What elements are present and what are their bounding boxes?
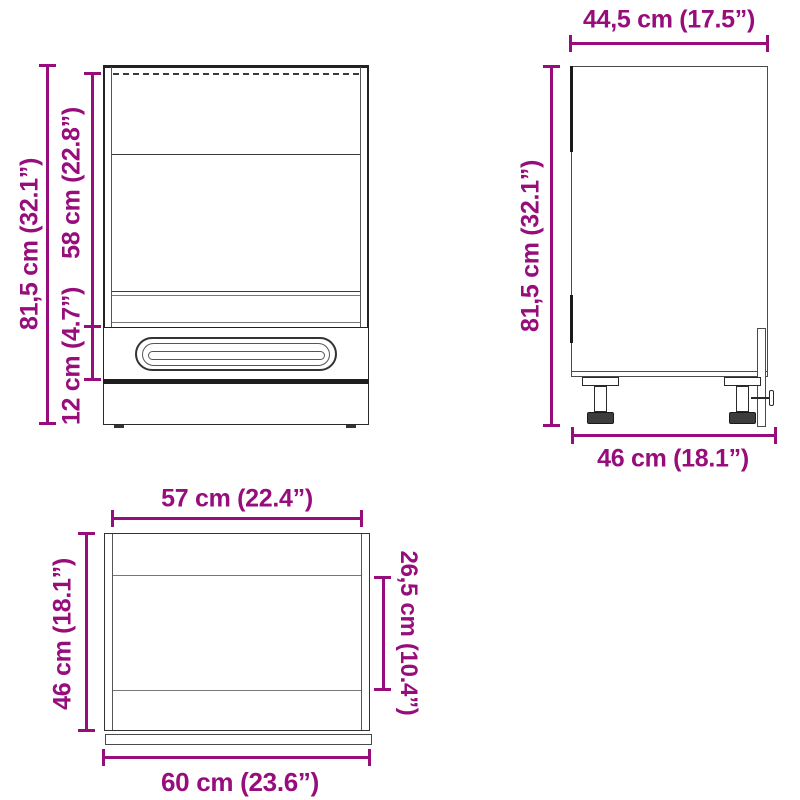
side-height-label: 81,5 cm (32.1”) <box>519 160 544 332</box>
side-wall-screw-head <box>769 390 774 406</box>
side-width-dimension-cap-left <box>569 35 572 52</box>
top-cabinet-right-panel-line <box>361 534 362 730</box>
side-cabinet-bottom-panel-line <box>572 371 767 372</box>
top-inner-depth-dimension-line <box>382 577 385 691</box>
side-depth-dimension-cap-left <box>571 427 574 444</box>
front-drawer-handle-slot <box>148 351 325 360</box>
side-width-label: 44,5 cm (17.5”) <box>583 8 755 33</box>
front-cabinet-shelf-line-inner <box>112 295 360 296</box>
top-inner-width-dimension-cap-right <box>360 510 363 527</box>
front-height-dimension-line <box>46 65 49 425</box>
front-opening-height-label: 58 cm (22.8”) <box>60 107 85 259</box>
top-inner-width-label: 57 cm (22.4”) <box>161 487 313 512</box>
top-cabinet-left-panel-line <box>112 534 113 730</box>
top-width-label: 60 cm (23.6”) <box>161 769 319 795</box>
top-cabinet-body <box>104 533 370 731</box>
front-drawer-height-label: 12 cm (4.7”) <box>60 287 85 425</box>
top-inner-width-dimension-line <box>112 517 362 520</box>
front-cabinet-right-side-panel <box>360 67 369 327</box>
front-inner-dimension-cap-top <box>84 72 101 75</box>
front-cabinet-plinth <box>103 384 369 425</box>
front-inner-dimension-cap-middle <box>84 325 101 328</box>
side-right-foot-stem <box>736 386 749 412</box>
top-inner-width-dimension-cap-left <box>111 510 114 527</box>
front-height-dimension-cap-top <box>39 64 56 67</box>
front-height-dimension-cap-bottom <box>39 422 56 425</box>
top-depth-label: 46 cm (18.1”) <box>51 558 76 710</box>
front-foot-tick-right <box>346 425 356 428</box>
side-left-foot-stem <box>594 386 607 412</box>
side-left-foot-bracket <box>582 377 619 386</box>
side-depth-label: 46 cm (18.1”) <box>597 447 749 472</box>
side-left-foot-base <box>587 412 614 424</box>
side-height-dimension-cap-bottom <box>543 424 560 427</box>
top-inner-depth-dimension-cap-bottom <box>374 688 391 691</box>
side-cabinet-front-edge-lower <box>570 295 573 343</box>
front-cabinet-upper-panel <box>112 68 360 155</box>
side-height-dimension-line <box>550 66 553 427</box>
side-right-foot-bracket <box>724 377 761 386</box>
side-width-dimension-cap-right <box>766 35 769 52</box>
front-inner-dimension-line <box>91 73 94 381</box>
front-cabinet-rail-line <box>112 322 360 323</box>
top-depth-dimension-cap-top <box>78 532 95 535</box>
top-width-dimension-cap-left <box>102 749 105 766</box>
side-cabinet-front-edge-upper <box>570 66 573 152</box>
top-inner-depth-label: 26,5 cm (10.4”) <box>396 551 420 716</box>
top-cabinet-back-line <box>113 575 361 576</box>
side-height-dimension-cap-top <box>543 65 560 68</box>
top-depth-dimension-line <box>85 533 88 731</box>
side-cabinet-body <box>571 66 768 377</box>
top-cabinet-door-strip <box>105 734 372 745</box>
side-width-dimension-line <box>570 42 768 45</box>
top-cabinet-front-line <box>113 690 361 691</box>
front-inner-dimension-cap-bottom <box>84 378 101 381</box>
dimension-diagram: 81,5 cm (32.1”) 58 cm (22.8”) 12 cm (4.7… <box>0 0 800 800</box>
front-cabinet-shelf-line-outer <box>112 291 360 292</box>
top-width-dimension-line <box>103 756 370 759</box>
front-cabinet-left-side-panel <box>103 67 112 327</box>
front-height-label: 81,5 cm (32.1”) <box>18 158 43 330</box>
front-foot-tick-left <box>114 425 124 428</box>
top-width-dimension-cap-right <box>368 749 371 766</box>
top-inner-depth-dimension-cap-top <box>374 576 391 579</box>
side-depth-dimension-cap-right <box>774 427 777 444</box>
side-right-foot-base <box>729 412 756 424</box>
side-depth-dimension-line <box>572 434 776 437</box>
top-depth-dimension-cap-bottom <box>78 729 95 732</box>
